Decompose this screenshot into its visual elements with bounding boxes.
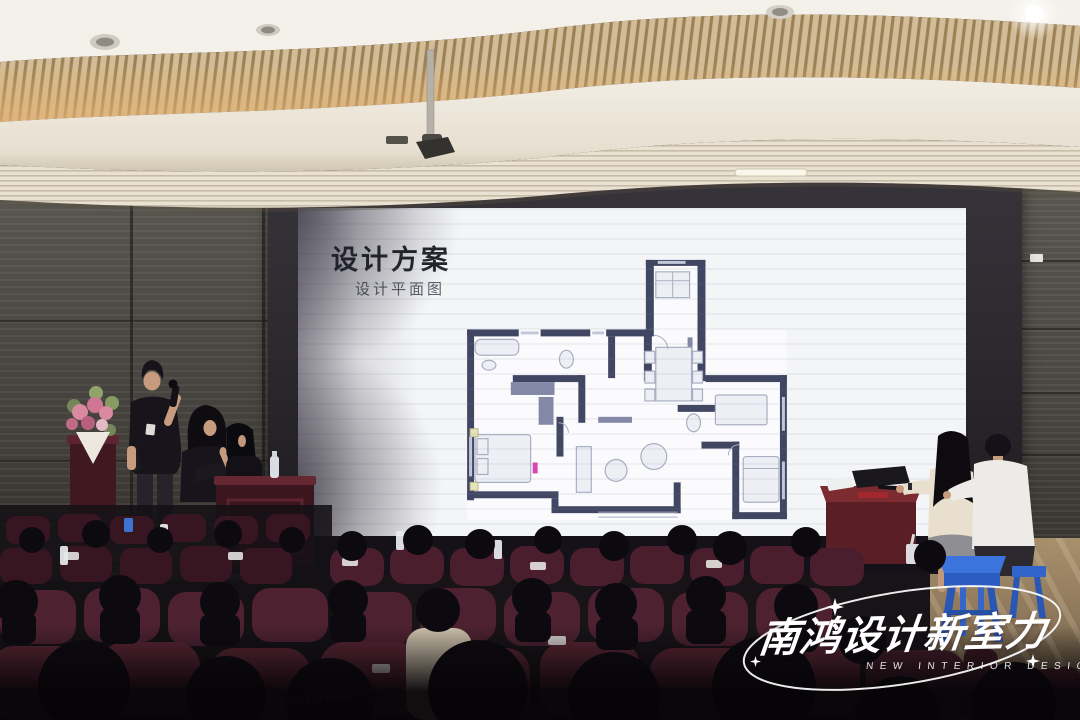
blue-bottle: [124, 518, 133, 532]
watermark-title: 南鸿设计新室力: [756, 598, 1074, 664]
watermark-subtitle: NEW INTERIOR DESIGN: [865, 661, 1080, 672]
auditorium-photo: 设计方案 设计平面图: [0, 0, 1080, 720]
watermark: 南鸿设计新室力 NEW INTERIOR DESIGN: [726, 576, 1070, 712]
